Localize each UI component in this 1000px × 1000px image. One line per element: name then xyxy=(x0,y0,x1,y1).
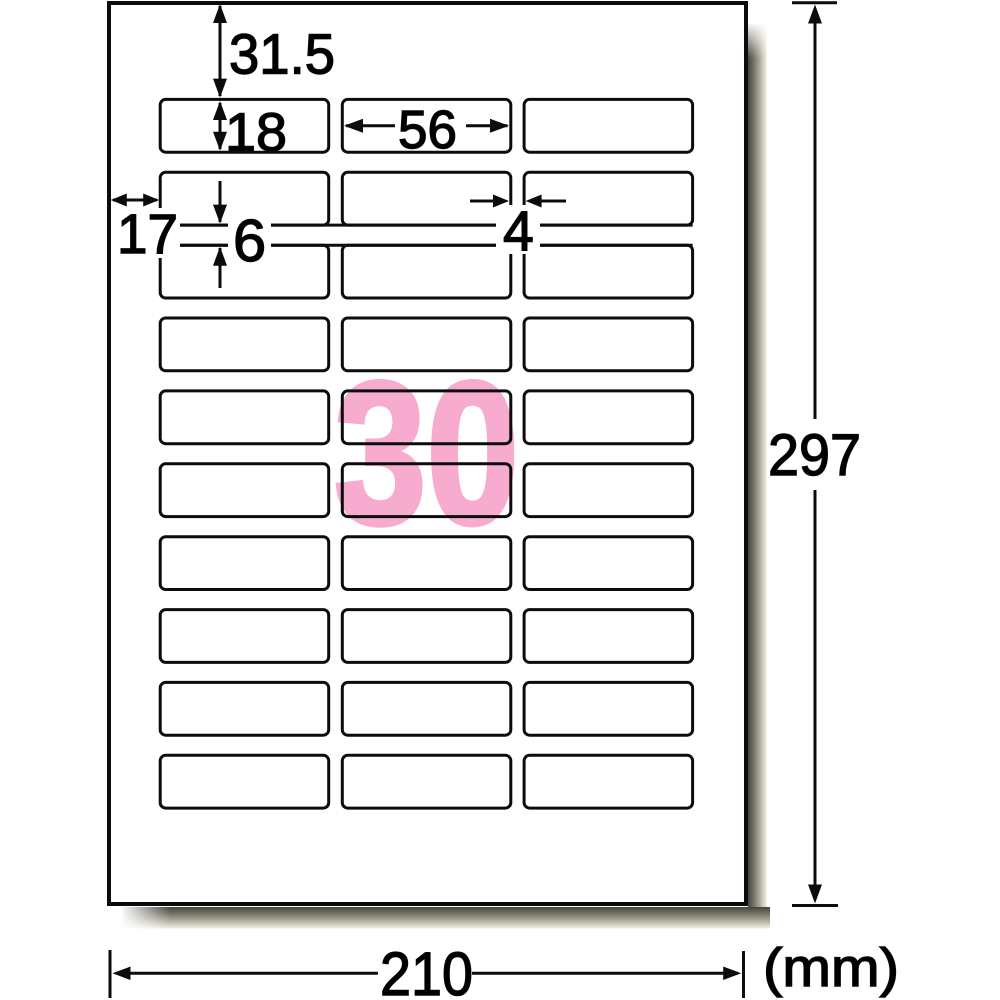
svg-text:30: 30 xyxy=(334,340,519,566)
svg-text:4: 4 xyxy=(503,200,534,262)
svg-text:(mm): (mm) xyxy=(763,938,899,998)
svg-text:297: 297 xyxy=(768,423,861,488)
svg-text:31.5: 31.5 xyxy=(229,23,335,86)
svg-text:6: 6 xyxy=(233,207,266,274)
svg-text:18: 18 xyxy=(225,103,287,163)
svg-text:210: 210 xyxy=(380,940,473,1000)
svg-text:56: 56 xyxy=(398,100,457,160)
svg-text:17: 17 xyxy=(117,203,178,265)
